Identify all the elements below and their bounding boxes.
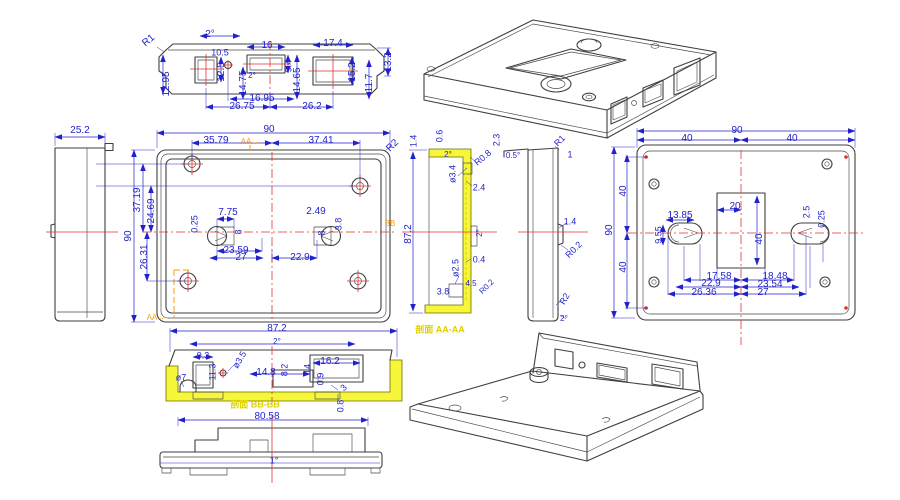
side-mid-view-dim-R0.2: R0.2: [564, 240, 584, 260]
front-view-dim-AA: AA→: [241, 138, 260, 146]
section-aa-view-dim-ø2.5: ø2.5: [452, 259, 461, 277]
section-aa-view-dim-2.3: 2.3: [493, 134, 502, 147]
top-view-dim-13.2: 13.2: [384, 52, 394, 71]
top-view-dim-12.5: 12.5: [217, 62, 227, 81]
section-bb-view-dim-0.9: 0.9: [317, 373, 326, 386]
front-view-dim-8: 8: [235, 229, 244, 234]
front-view-dim-7.75: 7.75: [218, 208, 237, 218]
side-left-view-dim-25.2: 25.2: [70, 126, 89, 136]
front-view-dim-2.49: 2.49: [306, 207, 325, 217]
section-bb-view-dim-16.2: 16.2: [320, 357, 339, 367]
top-view-dim-15.2: 15.2: [348, 62, 358, 81]
dimension-label-layer: R12°10.51617.413.212.9512.514.752°9.414.…: [0, 0, 900, 500]
side-mid-view-dim-R1: R1: [553, 134, 568, 149]
bottom-front-view-dim-80.58: 80.58: [254, 412, 279, 422]
front-view-dim-37.41: 37.41: [308, 136, 333, 146]
back-view-dim-20: 20: [729, 202, 740, 212]
top-view-dim-10.5: 10.5: [211, 49, 229, 58]
section-aa-view-dim-ø3.4: ø3.4: [449, 165, 458, 183]
back-view-dim-40: 40: [786, 134, 797, 144]
top-view-dim-14.65: 14.65: [293, 67, 303, 92]
front-view-dim-BB: BB: [385, 220, 396, 228]
section-bb-view-dim-ø3.5: ø3.5: [232, 350, 249, 370]
front-view-dim-3.8: 3.8: [335, 218, 344, 231]
back-view-dim-40: 40: [619, 185, 629, 196]
back-view-dim-40: 40: [755, 233, 765, 244]
section-aa-view-dim-1.4: 1.4: [410, 135, 419, 148]
back-view-dim-2.5: 2.5: [803, 206, 812, 219]
section-bb-view-dim-3: 3: [339, 383, 349, 393]
section-aa-view-dim-R0.8: R0.8: [473, 148, 493, 167]
top-view-dim-2°: 2°: [248, 72, 256, 80]
side-mid-view-dim-1: 1: [567, 151, 572, 160]
back-view-dim-0.25: 0.25: [818, 210, 827, 228]
section-aa-view-dim-4.5: 4.5: [465, 280, 476, 288]
front-view-dim-35.79: 35.79: [203, 136, 228, 146]
top-view-dim-26.2: 26.2: [302, 102, 321, 112]
section-bb-view-dim-ø7: ø7: [176, 374, 187, 383]
section-aa-view-dim-R0.2: R0.2: [478, 278, 496, 296]
section-aa-view-dim-87.2: 87.2: [404, 224, 414, 243]
section-bb-view-dim-BB-BB: 剖面 BB-BB: [230, 401, 280, 410]
front-view-dim-AA: AA→: [147, 314, 166, 322]
front-view-dim-90: 90: [263, 125, 274, 135]
front-view-dim-8: 8: [318, 230, 327, 235]
section-aa-view-dim-2°: 2°: [476, 229, 484, 237]
top-view-dim-12.95: 12.95: [162, 71, 172, 96]
section-aa-view-dim-0.6: 0.6: [436, 130, 445, 143]
back-view-dim-90: 90: [731, 126, 742, 136]
top-view-dim-17.4: 17.4: [323, 39, 342, 49]
side-mid-view-dim-1.4: 1.4: [564, 218, 577, 227]
section-aa-view-dim-0.5°: 0.5°: [506, 152, 520, 160]
section-bb-view-dim-8.2: 8.2: [281, 364, 290, 377]
section-aa-view-dim-2.4: 2.4: [473, 184, 486, 193]
back-view-dim-13.85: 13.85: [667, 211, 692, 221]
top-view-dim-16: 16: [261, 41, 272, 51]
section-aa-view-dim-0.4: 0.4: [473, 256, 486, 265]
back-view-dim-27: 27: [757, 288, 768, 298]
front-view-dim-R2: R2: [385, 138, 401, 154]
front-view-dim-37.19: 37.19: [133, 187, 143, 212]
section-aa-view-dim-3.8: 3.8: [437, 288, 450, 297]
section-aa-view-dim-2°: 2°: [444, 151, 452, 159]
front-view-dim-27: 27: [235, 253, 246, 263]
top-view-dim-11.7: 11.7: [365, 74, 375, 93]
side-mid-view-dim-R2: R2: [558, 292, 572, 306]
section-bb-view-dim-11.3: 11.3: [209, 364, 218, 381]
top-view-dim-R1: R1: [141, 33, 157, 49]
front-view-dim-90: 90: [124, 230, 134, 241]
front-view-dim-22.9: 22.9: [290, 253, 309, 263]
section-bb-view-dim-0.8: 0.8: [337, 400, 346, 413]
section-bb-view-dim-14.8: 14.8: [256, 368, 275, 378]
section-aa-view-dim-AA-AA: 剖面 AA-AA: [415, 326, 465, 335]
back-view-dim-9.55: 9.55: [655, 226, 664, 244]
bottom-front-view-dim-1°: 1°: [270, 457, 279, 466]
side-mid-view-dim-2°: 2°: [560, 315, 568, 323]
back-view-dim-40: 40: [681, 134, 692, 144]
section-bb-view-dim-87.2: 87.2: [267, 324, 286, 334]
drawing-canvas: R12°10.51617.413.212.9512.514.752°9.414.…: [0, 0, 900, 500]
section-bb-view-dim-14: 14: [304, 364, 313, 374]
front-view-dim-24.69: 24.69: [147, 198, 157, 223]
back-view-dim-40: 40: [619, 261, 629, 272]
back-view-dim-26.36: 26.36: [691, 288, 716, 298]
back-view-dim-90: 90: [605, 224, 615, 235]
top-view-dim-26.75: 26.75: [229, 102, 254, 112]
section-bb-view-dim-2°: 2°: [273, 338, 281, 346]
front-view-dim-0.25: 0.25: [191, 215, 200, 233]
front-view-dim-26.31: 26.31: [140, 244, 150, 269]
section-bb-view-dim-9.3: 9.3: [197, 352, 210, 361]
top-view-dim-2°: 2°: [205, 30, 215, 40]
